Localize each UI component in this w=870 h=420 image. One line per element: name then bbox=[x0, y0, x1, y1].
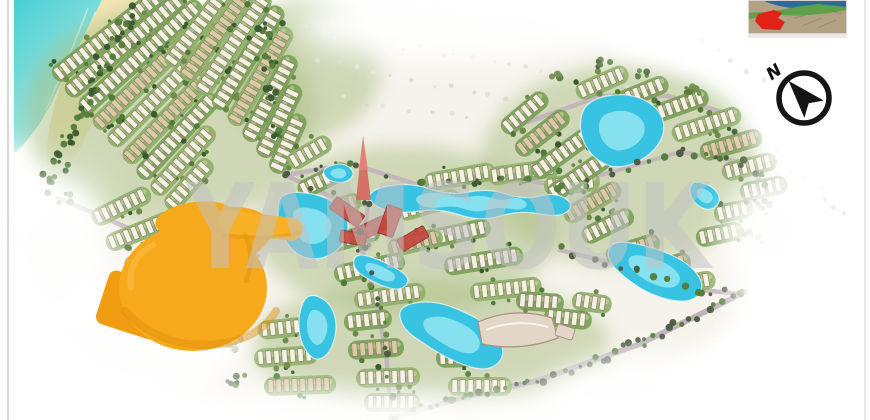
masterplan-listing-image: YAMSOUK YAMSOUK N bbox=[0, 0, 870, 420]
masterplan-map bbox=[0, 0, 870, 420]
